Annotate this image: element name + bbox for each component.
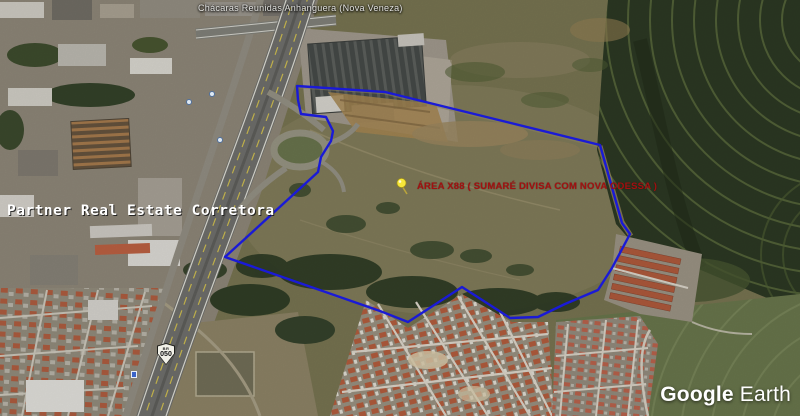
shield-number: 050: [160, 351, 172, 358]
road-marker-icon: [217, 137, 223, 143]
pushpin-icon[interactable]: [396, 177, 410, 196]
road-sign-icon: [131, 371, 137, 378]
road-marker-icon: [209, 91, 215, 97]
google-earth-logo: GoogleEarth: [660, 383, 791, 407]
area-annotation: ÁREA X88 ( SUMARÉ DIVISA COM NOVA ODESSA…: [417, 181, 657, 192]
company-watermark: Partner Real Estate Corretora: [7, 203, 275, 219]
place-label-top: Chácaras Reunidas Anhanguera (Nova Venez…: [198, 3, 403, 13]
logo-google-text: Google: [660, 383, 734, 406]
logo-earth-text: Earth: [740, 383, 791, 406]
google-earth-viewport[interactable]: Chácaras Reunidas Anhanguera (Nova Venez…: [0, 0, 800, 416]
road-marker-icon: [186, 99, 192, 105]
